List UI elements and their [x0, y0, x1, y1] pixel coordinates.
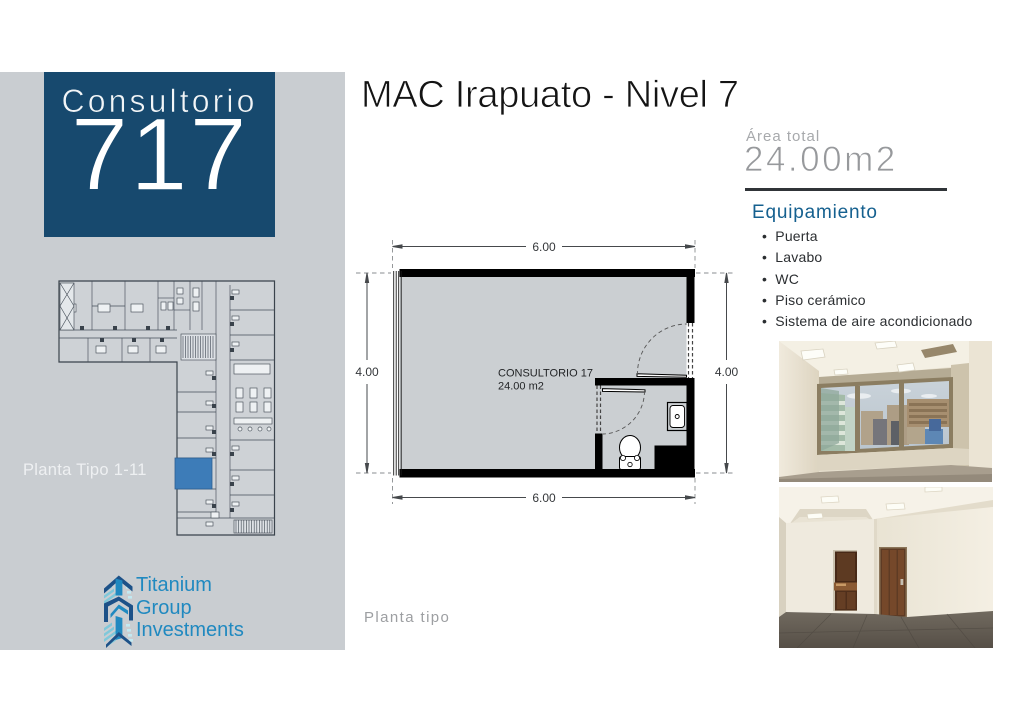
svg-text:CONSULTORIO 17: CONSULTORIO 17: [498, 368, 593, 380]
svg-text:24.00 m2: 24.00 m2: [498, 381, 544, 393]
svg-text:6.00: 6.00: [532, 491, 556, 505]
svg-text:4.00: 4.00: [355, 365, 379, 379]
svg-text:6.00: 6.00: [532, 240, 556, 254]
svg-text:4.00: 4.00: [715, 365, 739, 379]
